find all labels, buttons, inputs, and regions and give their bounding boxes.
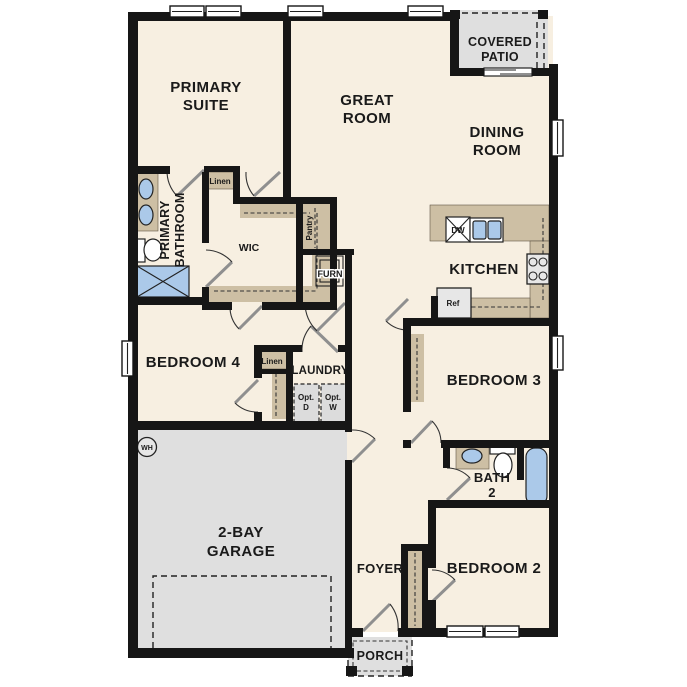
kitchen-sink-basin-1 — [473, 221, 486, 239]
wall-patio-left — [450, 10, 459, 76]
bedroom3-label: BEDROOM 3 — [447, 372, 541, 389]
primary-suite-label-1: PRIMARY — [170, 79, 241, 96]
dining-room-label-1: DINING — [470, 124, 525, 141]
dishwasher-label: DW — [451, 226, 465, 235]
wall-suite-bottom — [128, 166, 170, 174]
porch-label: PORCH — [357, 649, 404, 663]
wall-hall-left-lower — [345, 460, 352, 648]
wall-bath2-top — [441, 440, 549, 448]
bath2-sink-icon — [462, 449, 482, 463]
primary-bathroom-label-1: PRIMARY — [158, 200, 172, 260]
opt-washer-label-1: Opt. — [325, 393, 341, 402]
primary-suite-label-2: SUITE — [183, 97, 229, 114]
wall-laundry-top-left — [286, 345, 302, 352]
garage-label-1: 2-BAY — [218, 524, 264, 541]
porch-post-right — [402, 666, 413, 676]
primary-bathroom-label-2: BATHROOM — [173, 192, 187, 267]
wall-bedroom3-west — [403, 318, 411, 412]
covered-patio-label-2: PATIO — [481, 50, 519, 64]
laundry-label: LAUNDRY — [291, 365, 348, 377]
wall-bath-bottom — [128, 297, 208, 305]
wall-laundry-left — [286, 345, 293, 428]
pantry-label: Pantry — [305, 215, 314, 240]
vanity-sink-icon-1 — [139, 179, 153, 199]
vanity-sink-icon-2 — [139, 205, 153, 225]
wall-laundry-top-right — [338, 345, 352, 352]
wall-bath-wic-upper — [202, 172, 209, 243]
wall-left-exterior — [128, 12, 138, 658]
patio-slider-door — [484, 68, 532, 76]
great-room-label-2: ROOM — [343, 110, 391, 127]
wall-wic-top — [233, 197, 333, 204]
wall-furn-left — [296, 249, 303, 306]
foyer-label: FOYER — [357, 561, 404, 576]
patio-post-right — [538, 10, 548, 19]
bath2-label-2: 2 — [488, 485, 496, 500]
wall-patio-bottom-left — [450, 68, 484, 76]
wall-bedroom4-closet-lower — [254, 412, 262, 421]
covered-patio-label-1: COVERED — [468, 35, 532, 49]
water-heater-label: WH — [141, 445, 153, 452]
bath2-label-1: BATH — [474, 470, 510, 485]
porch-post-left — [346, 666, 357, 676]
linen2-label: Linen — [261, 357, 282, 366]
bedroom4-label: BEDROOM 4 — [146, 354, 241, 371]
wall-foyer-closet-right — [422, 544, 428, 628]
wall-foyer-closet-left — [401, 544, 408, 628]
opt-dryer-label-2: D — [303, 403, 309, 412]
wall-bath2-west — [443, 440, 450, 468]
wall-kitchen-bedroom3 — [403, 318, 549, 326]
bathtub-icon — [526, 448, 547, 505]
furn-label: FURN — [318, 269, 343, 279]
opt-dryer-label-1: Opt. — [298, 393, 314, 402]
wall-bath2-bottom — [428, 500, 549, 508]
wall-suite-right — [283, 12, 291, 204]
floor-plan-page: PRIMARY SUITE GREAT ROOM DINING ROOM COV… — [0, 0, 687, 687]
garage-label-2: GARAGE — [207, 543, 275, 560]
great-room-label-1: GREAT — [340, 92, 393, 109]
dining-room-label-2: ROOM — [473, 142, 521, 159]
kitchen-label: KITCHEN — [449, 261, 518, 278]
floor-plan-canvas: PRIMARY SUITE GREAT ROOM DINING ROOM COV… — [0, 0, 687, 687]
wall-wic-bottom-left — [202, 302, 232, 310]
linen1-label: Linen — [209, 177, 230, 186]
wall-linen2-bottom — [256, 369, 288, 374]
wall-tub-divider — [517, 440, 524, 480]
wall-bedroom2-west-upper — [428, 508, 436, 568]
wall-garage-bottom — [128, 648, 354, 658]
wall-hall-left-upper — [345, 249, 352, 432]
opt-washer-label-2: W — [329, 403, 337, 412]
wall-linen1-top — [204, 166, 240, 172]
bedroom4-closet-shelf — [272, 371, 286, 419]
wall-bath2-top-left — [403, 440, 411, 448]
wall-bedroom2-west-lower — [428, 600, 436, 637]
kitchen-sink-basin-2 — [488, 221, 501, 239]
wic-label: WIC — [239, 242, 260, 254]
wall-pantry-left — [296, 197, 303, 255]
refrigerator-label: Ref — [447, 299, 460, 308]
wall-garage-top — [128, 421, 352, 430]
bedroom2-label: BEDROOM 2 — [447, 560, 541, 577]
